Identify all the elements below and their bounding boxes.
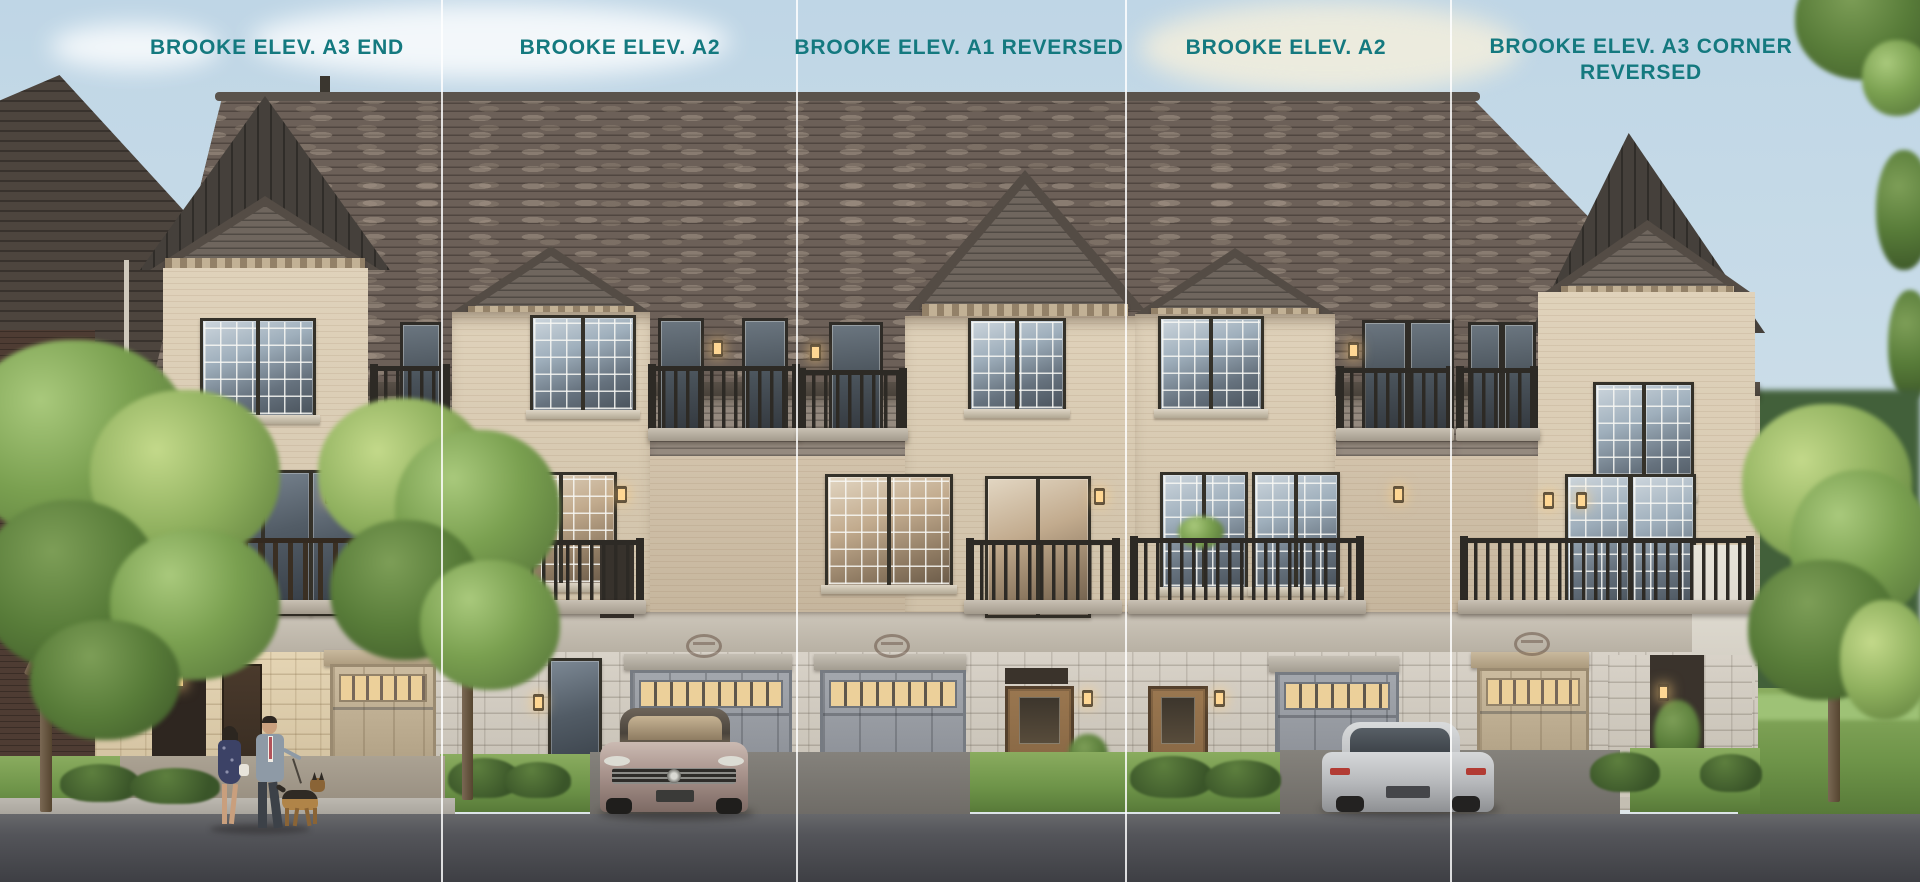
- car-rear-window: [1350, 728, 1450, 754]
- tree-canopy: [30, 620, 180, 740]
- tree-canopy: [1862, 40, 1920, 116]
- car-wheel: [1452, 796, 1480, 812]
- elevation-label-a1-reversed: BROOKE ELEV. A1 REVERSED: [794, 36, 1123, 60]
- balcony-deck: [798, 428, 908, 441]
- tree-branch: [1888, 290, 1920, 400]
- wall-lantern: [1214, 690, 1225, 707]
- wall-lantern: [1094, 488, 1105, 505]
- car-wheel: [1336, 796, 1364, 812]
- shrub: [1700, 754, 1762, 792]
- unit3-main-window: [825, 474, 953, 588]
- balcony-deck: [1128, 600, 1366, 614]
- man-hair: [262, 716, 277, 723]
- unit3-balcony-railing: [800, 370, 905, 436]
- woman-clutch: [239, 764, 249, 776]
- elevation-label-a2-right: BROOKE ELEV. A2: [1186, 36, 1387, 60]
- shrub: [1205, 760, 1281, 798]
- balcony-deck: [1456, 428, 1540, 441]
- woman-dress: [218, 740, 241, 784]
- car-taillight: [1466, 768, 1486, 775]
- section-divider: [441, 0, 443, 882]
- door-transom: [1005, 668, 1068, 684]
- grass: [960, 752, 1135, 812]
- car-windshield: [628, 716, 722, 740]
- elevation-label-a2-left: BROOKE ELEV. A2: [520, 36, 721, 60]
- man-leg: [258, 782, 267, 828]
- wall-lantern: [1348, 342, 1359, 359]
- unit3-gable-window: [968, 318, 1066, 412]
- shrub: [1590, 752, 1660, 792]
- dog-body: [282, 790, 318, 810]
- wall-lantern: [533, 694, 544, 711]
- dog-leg: [285, 808, 289, 826]
- shrub: [1130, 756, 1214, 798]
- balcony-deck: [964, 600, 1122, 614]
- wall-lantern: [616, 486, 627, 503]
- garage-emblem: [686, 634, 722, 658]
- wall-lantern: [712, 340, 723, 357]
- car-taillight: [1330, 768, 1350, 775]
- roof-ridge: [215, 92, 1480, 101]
- man-tie: [269, 737, 272, 759]
- tree-branch: [1876, 150, 1920, 270]
- car-wheel: [716, 798, 742, 814]
- wall-lantern: [1393, 486, 1404, 503]
- balcony-deck: [1336, 428, 1454, 441]
- section-divider: [1450, 0, 1452, 882]
- elevation-label-a3-end: BROOKE ELEV. A3 END: [150, 36, 404, 60]
- balcony-deck: [648, 428, 800, 441]
- dog-head: [310, 778, 325, 792]
- wall-lantern: [1576, 492, 1587, 509]
- car-plate: [1386, 786, 1430, 798]
- elevation-label-a3-corner-reversed: BROOKE ELEV. A3 CORNER REVERSED: [1486, 34, 1796, 86]
- wall-lantern: [1082, 690, 1093, 707]
- shrub: [505, 762, 571, 798]
- section-divider: [1125, 0, 1127, 882]
- unit2-upper-window: [530, 315, 636, 413]
- woman-leg: [222, 784, 227, 824]
- dog-leg: [313, 808, 317, 824]
- car-plate: [656, 790, 694, 802]
- tree-canopy: [1840, 600, 1920, 720]
- section-divider: [796, 0, 798, 882]
- car-wheel: [606, 798, 632, 814]
- car-badge: [667, 769, 681, 783]
- garage-emblem: [1514, 632, 1550, 656]
- shrub: [130, 768, 220, 804]
- shrub: [60, 764, 140, 802]
- roof-vent: [320, 76, 330, 92]
- unit4-upper-window: [1158, 316, 1264, 412]
- car-headlight: [718, 756, 744, 766]
- wall-lantern: [1543, 492, 1554, 509]
- balcony-deck: [1458, 600, 1756, 614]
- car-headlight: [604, 756, 630, 766]
- wall-lantern: [810, 344, 821, 361]
- unit2-balcony-railing: [650, 366, 798, 436]
- porch-lantern: [1658, 684, 1669, 701]
- elevation-rendering: BROOKE ELEV. A3 END BROOKE ELEV. A2 BROO…: [0, 0, 1920, 882]
- garage-lintel: [1269, 656, 1399, 672]
- garage-emblem: [874, 634, 910, 658]
- unit4-balcony-railing: [1338, 368, 1452, 436]
- unit5-balcony-railing: [1458, 368, 1536, 436]
